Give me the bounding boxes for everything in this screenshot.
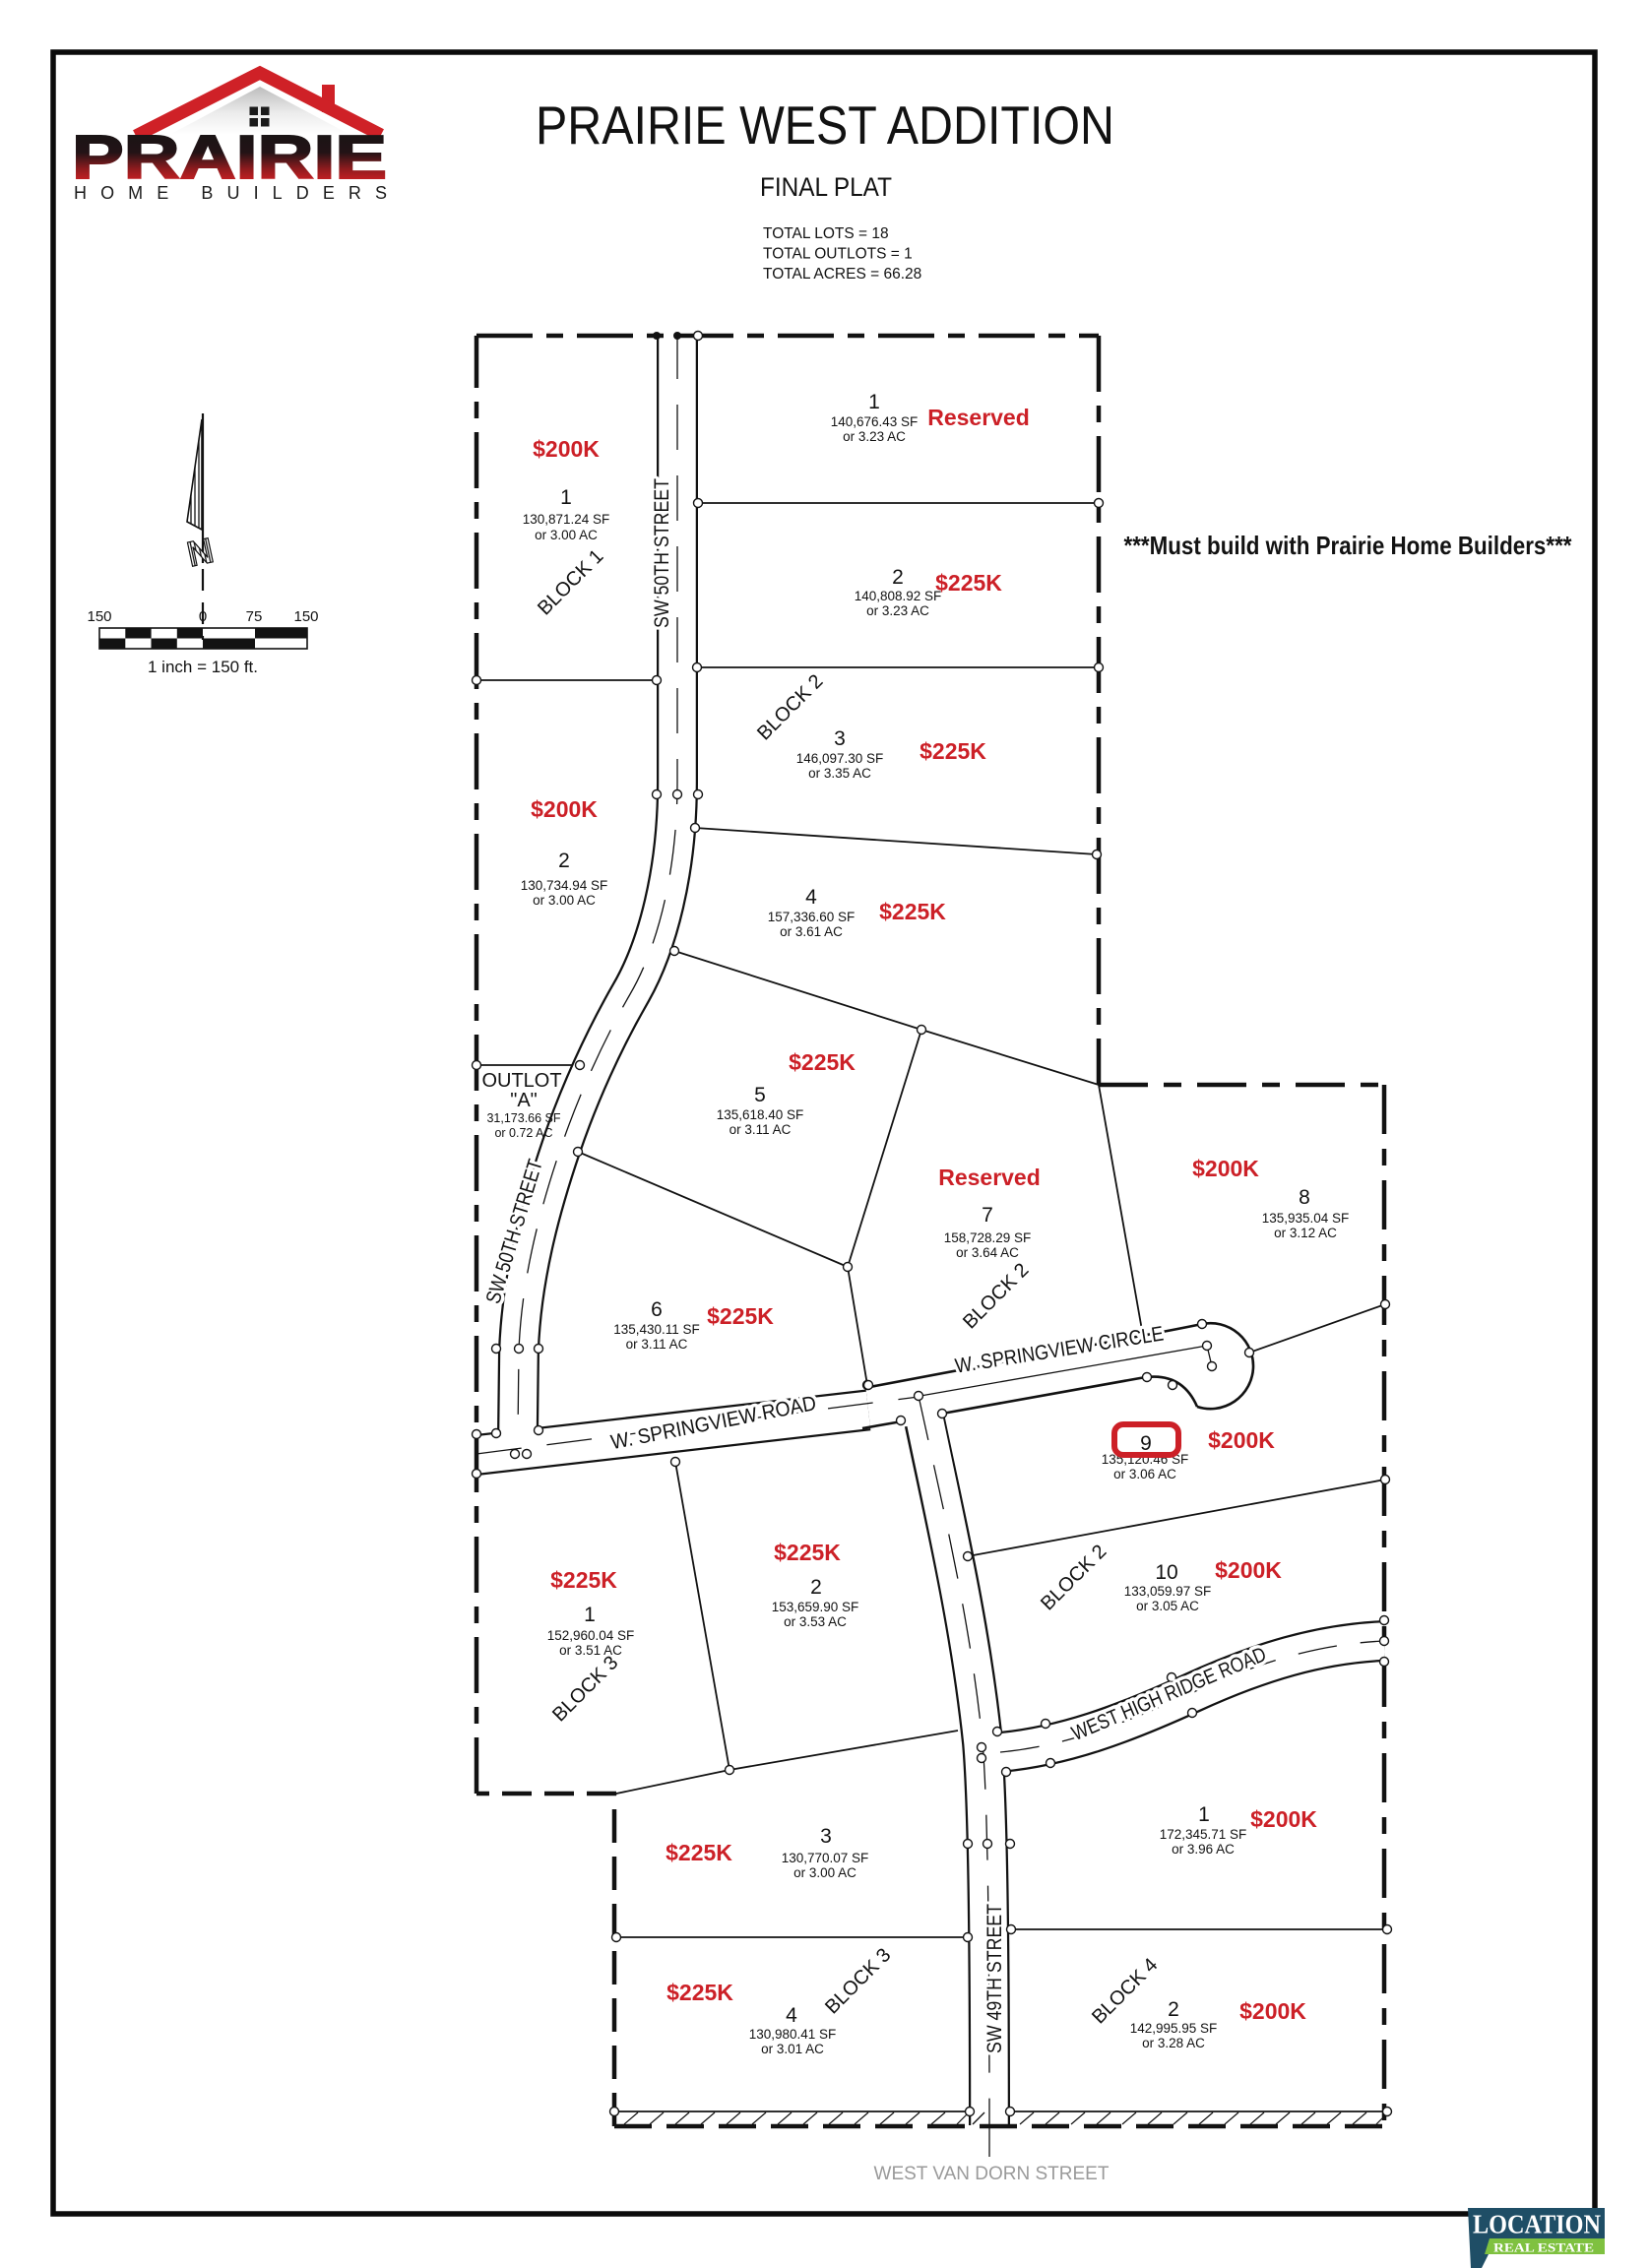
svg-text:4: 4 — [786, 2004, 797, 2027]
svg-text:$225K: $225K — [935, 570, 1002, 596]
svg-text:130,980.41 SF: 130,980.41 SF — [749, 2027, 837, 2042]
svg-text:FINAL PLAT: FINAL PLAT — [760, 172, 892, 202]
svg-text:$200K: $200K — [533, 436, 600, 462]
svg-text:or 3.28 AC: or 3.28 AC — [1142, 2036, 1205, 2050]
svg-text:$200K: $200K — [1208, 1427, 1275, 1453]
svg-text:$200K: $200K — [1250, 1806, 1317, 1832]
svg-text:or 3.11 AC: or 3.11 AC — [729, 1122, 792, 1137]
svg-text:140,808.92 SF: 140,808.92 SF — [855, 589, 942, 603]
svg-text:150: 150 — [293, 608, 318, 625]
svg-text:or 3.00 AC: or 3.00 AC — [535, 528, 598, 542]
svg-text:8: 8 — [1299, 1186, 1310, 1209]
svg-text:1: 1 — [584, 1604, 596, 1626]
svg-text:$200K: $200K — [1215, 1557, 1282, 1583]
svg-text:or 3.06 AC: or 3.06 AC — [1113, 1467, 1176, 1481]
svg-text:2: 2 — [558, 850, 570, 872]
svg-text:$200K: $200K — [1239, 1998, 1306, 2024]
svg-text:PRAIRIE WEST ADDITION: PRAIRIE WEST ADDITION — [536, 94, 1114, 156]
svg-text:or 3.23 AC: or 3.23 AC — [866, 603, 929, 618]
svg-text:2: 2 — [1168, 1998, 1179, 2021]
svg-text:SW 50TH STREET: SW 50TH STREET — [651, 478, 673, 628]
svg-text:SW 49TH STREET: SW 49TH STREET — [983, 1904, 1006, 2053]
svg-text:or 3.96 AC: or 3.96 AC — [1172, 1842, 1235, 1857]
svg-text:75: 75 — [246, 608, 263, 625]
svg-text:153,659.90 SF: 153,659.90 SF — [772, 1600, 859, 1614]
svg-text:***Must build with Prairie Hom: ***Must build with Prairie Home Builders… — [1124, 531, 1573, 560]
svg-text:or 3.00 AC: or 3.00 AC — [793, 1865, 856, 1880]
svg-text:1: 1 — [560, 486, 572, 509]
svg-text:or 0.72 AC: or 0.72 AC — [494, 1126, 552, 1140]
svg-text:31,173.66 SF: 31,173.66 SF — [486, 1111, 560, 1125]
svg-text:or 3.11 AC: or 3.11 AC — [626, 1337, 688, 1352]
svg-text:10: 10 — [1155, 1561, 1177, 1584]
svg-text:or 3.64 AC: or 3.64 AC — [956, 1245, 1019, 1260]
svg-text:PRAIRIE: PRAIRIE — [72, 124, 387, 192]
svg-text:REAL ESTATE: REAL ESTATE — [1493, 2241, 1594, 2255]
svg-text:133,059.97 SF: 133,059.97 SF — [1124, 1584, 1212, 1599]
svg-text:or 3.51 AC: or 3.51 AC — [559, 1643, 622, 1658]
svg-text:or 3.00 AC: or 3.00 AC — [533, 893, 596, 908]
svg-text:1: 1 — [868, 391, 880, 413]
svg-text:TOTAL OUTLOTS = 1: TOTAL OUTLOTS = 1 — [763, 246, 913, 263]
svg-text:WEST VAN DORN STREET: WEST VAN DORN STREET — [874, 2164, 1110, 2184]
svg-text:$225K: $225K — [774, 1540, 841, 1565]
svg-text:1: 1 — [1198, 1803, 1210, 1826]
svg-text:135,430.11 SF: 135,430.11 SF — [613, 1322, 700, 1337]
svg-text:2: 2 — [892, 566, 904, 589]
svg-text:$200K: $200K — [531, 796, 598, 822]
svg-text:3: 3 — [820, 1825, 832, 1848]
svg-text:or 3.12 AC: or 3.12 AC — [1274, 1226, 1337, 1240]
svg-text:9: 9 — [1140, 1432, 1152, 1455]
svg-text:Reserved: Reserved — [927, 405, 1030, 430]
svg-text:7: 7 — [982, 1204, 993, 1227]
svg-text:or 3.23 AC: or 3.23 AC — [843, 429, 906, 444]
svg-text:$225K: $225K — [666, 1840, 732, 1865]
svg-text:158,728.29 SF: 158,728.29 SF — [944, 1230, 1032, 1245]
svg-text:TOTAL LOTS = 18: TOTAL LOTS = 18 — [763, 225, 889, 242]
svg-text:or 3.05 AC: or 3.05 AC — [1136, 1599, 1199, 1613]
svg-text:or 3.35 AC: or 3.35 AC — [808, 766, 871, 781]
svg-text:$225K: $225K — [789, 1049, 856, 1075]
svg-text:2: 2 — [810, 1576, 822, 1599]
svg-text:172,345.71 SF: 172,345.71 SF — [1160, 1827, 1247, 1842]
svg-text:130,770.07 SF: 130,770.07 SF — [782, 1851, 869, 1865]
svg-text:146,097.30 SF: 146,097.30 SF — [796, 751, 884, 766]
svg-text:$225K: $225K — [666, 1980, 733, 2005]
svg-text:$200K: $200K — [1192, 1156, 1259, 1181]
svg-text:0: 0 — [199, 608, 207, 625]
svg-text:or 3.01 AC: or 3.01 AC — [761, 2042, 824, 2056]
svg-text:5: 5 — [754, 1084, 766, 1106]
svg-text:$225K: $225K — [879, 899, 946, 924]
svg-text:130,871.24 SF: 130,871.24 SF — [523, 512, 610, 527]
svg-text:142,995.95 SF: 142,995.95 SF — [1130, 2021, 1218, 2036]
svg-text:152,960.04 SF: 152,960.04 SF — [547, 1628, 635, 1643]
svg-text:LOCATION: LOCATION — [1473, 2210, 1601, 2239]
svg-text:Reserved: Reserved — [938, 1165, 1041, 1190]
svg-text:150: 150 — [87, 608, 111, 625]
svg-text:$225K: $225K — [707, 1303, 774, 1329]
svg-text:or 3.61 AC: or 3.61 AC — [780, 924, 843, 939]
svg-text:130,734.94 SF: 130,734.94 SF — [521, 878, 608, 893]
svg-text:6: 6 — [651, 1298, 663, 1321]
svg-text:"A": "A" — [510, 1090, 538, 1111]
svg-text:$225K: $225K — [550, 1567, 617, 1593]
svg-text:TOTAL ACRES = 66.28: TOTAL ACRES = 66.28 — [763, 266, 921, 283]
svg-text:135,618.40 SF: 135,618.40 SF — [717, 1107, 804, 1122]
svg-text:$225K: $225K — [920, 738, 986, 764]
svg-text:4: 4 — [805, 886, 817, 909]
svg-text:1 inch = 150 ft.: 1 inch = 150 ft. — [148, 658, 258, 676]
svg-text:157,336.60 SF: 157,336.60 SF — [768, 910, 856, 924]
svg-text:135,935.04 SF: 135,935.04 SF — [1262, 1211, 1350, 1226]
svg-text:or 3.53 AC: or 3.53 AC — [784, 1614, 847, 1629]
svg-text:3: 3 — [834, 727, 846, 750]
svg-text:OUTLOT: OUTLOT — [481, 1070, 561, 1092]
svg-text:140,676.43 SF: 140,676.43 SF — [831, 414, 919, 429]
